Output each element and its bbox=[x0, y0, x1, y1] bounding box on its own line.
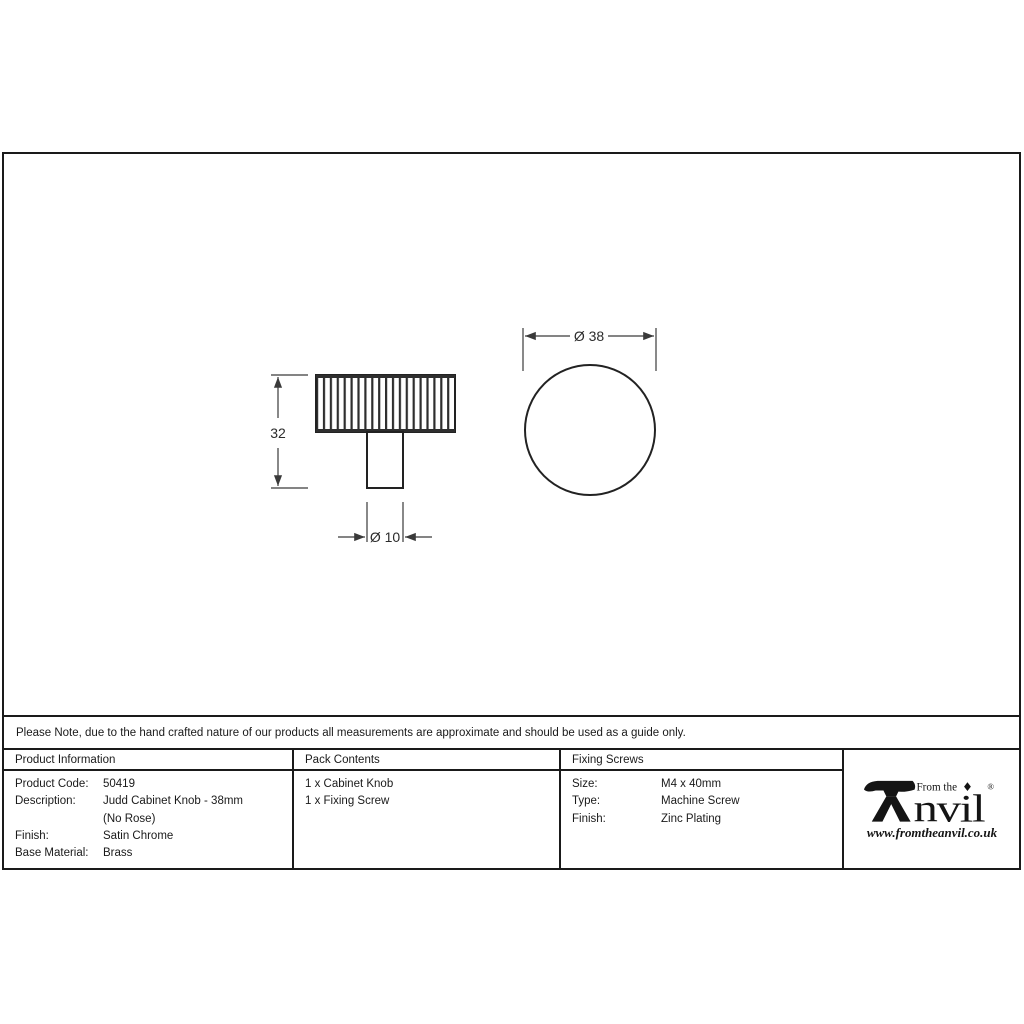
field-label: Finish: bbox=[572, 811, 661, 828]
note-bar: Please Note, due to the hand crafted nat… bbox=[4, 715, 1019, 748]
fixing-screws-header: Fixing Screws bbox=[561, 750, 842, 771]
table-row: Finish:Zinc Plating bbox=[572, 811, 842, 828]
product-information-body: Product Code:50419 Description:Judd Cabi… bbox=[4, 771, 292, 862]
table-row: Base Material:Brass bbox=[15, 845, 292, 862]
table-row: Finish:Satin Chrome bbox=[15, 828, 292, 845]
pack-item: 1 x Cabinet Knob bbox=[305, 776, 559, 793]
field-label: Base Material: bbox=[15, 845, 103, 862]
fixing-screws-column: Fixing Screws Size:M4 x 40mm Type:Machin… bbox=[559, 750, 842, 868]
info-table: Product Information Product Code:50419 D… bbox=[4, 748, 1019, 868]
head-diameter-label: Ø 38 bbox=[574, 328, 605, 344]
pack-contents-column: Pack Contents 1 x Cabinet Knob 1 x Fixin… bbox=[292, 750, 559, 868]
from-the-anvil-logo: From the nvil ® www.fromtheanvil.co.uk bbox=[864, 777, 1000, 841]
logo-website: www.fromtheanvil.co.uk bbox=[866, 826, 997, 840]
knob-head-fluted bbox=[316, 375, 455, 432]
table-row: Product Code:50419 bbox=[15, 776, 292, 793]
field-label: Size: bbox=[572, 776, 661, 793]
field-label: Product Code: bbox=[15, 776, 103, 793]
stem-diameter-label: Ø 10 bbox=[370, 529, 401, 545]
registered-trademark: ® bbox=[987, 782, 994, 792]
field-label: Finish: bbox=[15, 828, 103, 845]
product-information-column: Product Information Product Code:50419 D… bbox=[4, 750, 292, 868]
field-value: (No Rose) bbox=[103, 813, 155, 825]
pack-item: 1 x Fixing Screw bbox=[305, 793, 559, 810]
table-row: Type:Machine Screw bbox=[572, 793, 842, 810]
knob-technical-drawing: 32 Ø 10 Ø 38 bbox=[4, 154, 1019, 715]
table-row: Description:Judd Cabinet Knob - 38mm bbox=[15, 793, 292, 810]
pack-contents-header: Pack Contents bbox=[294, 750, 559, 771]
top-view: Ø 38 bbox=[523, 328, 656, 495]
logo-brand-text: nvil bbox=[913, 788, 985, 831]
field-value: Brass bbox=[103, 847, 132, 859]
technical-drawing-area: 32 Ø 10 Ø 38 bbox=[4, 154, 1019, 715]
field-value: Satin Chrome bbox=[103, 830, 173, 842]
side-view: 32 Ø 10 bbox=[270, 375, 455, 545]
field-value: M4 x 40mm bbox=[661, 778, 721, 790]
document-frame: 32 Ø 10 Ø 38 bbox=[2, 152, 1021, 870]
knob-stem bbox=[367, 432, 403, 488]
field-value: Machine Screw bbox=[661, 795, 740, 807]
field-value: Zinc Plating bbox=[661, 813, 721, 825]
pack-contents-body: 1 x Cabinet Knob 1 x Fixing Screw bbox=[294, 771, 559, 811]
field-value: 50419 bbox=[103, 778, 135, 790]
fixing-screws-body: Size:M4 x 40mm Type:Machine Screw Finish… bbox=[561, 771, 842, 828]
field-value: Judd Cabinet Knob - 38mm bbox=[103, 795, 243, 807]
product-information-header: Product Information bbox=[4, 750, 292, 771]
height-dimension-label: 32 bbox=[270, 425, 286, 441]
note-text: Please Note, due to the hand crafted nat… bbox=[16, 727, 686, 739]
field-label: Type: bbox=[572, 793, 661, 810]
knob-top-circle bbox=[525, 365, 655, 495]
field-label: Description: bbox=[15, 793, 103, 810]
table-row: (No Rose) bbox=[15, 811, 292, 828]
table-row: Size:M4 x 40mm bbox=[572, 776, 842, 793]
brand-logo-cell: From the nvil ® www.fromtheanvil.co.uk bbox=[842, 750, 1019, 868]
